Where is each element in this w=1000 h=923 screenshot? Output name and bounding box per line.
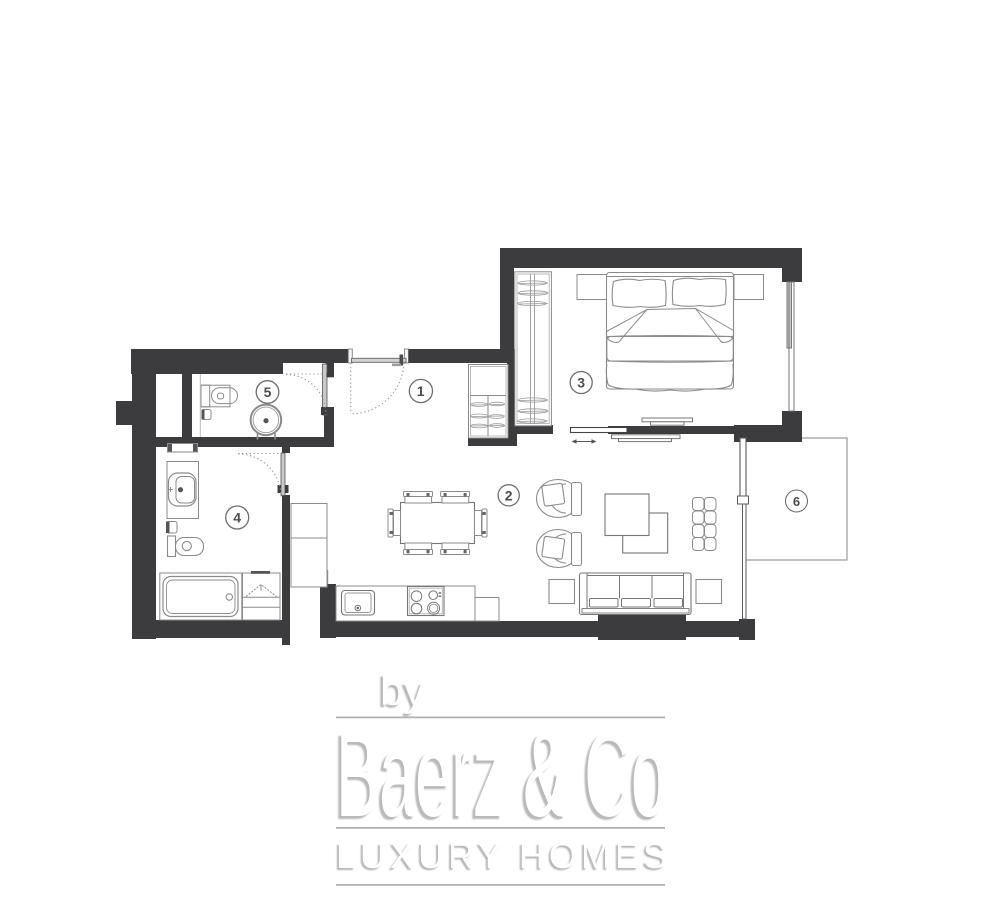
svg-text:1: 1 [417, 383, 425, 399]
svg-text:5: 5 [264, 384, 272, 400]
svg-text:2: 2 [505, 487, 513, 503]
svg-text:3: 3 [577, 375, 585, 391]
svg-text:4: 4 [233, 510, 241, 526]
svg-text:Baerz & Co: Baerz & Co [336, 706, 667, 842]
svg-text:6: 6 [793, 494, 800, 509]
